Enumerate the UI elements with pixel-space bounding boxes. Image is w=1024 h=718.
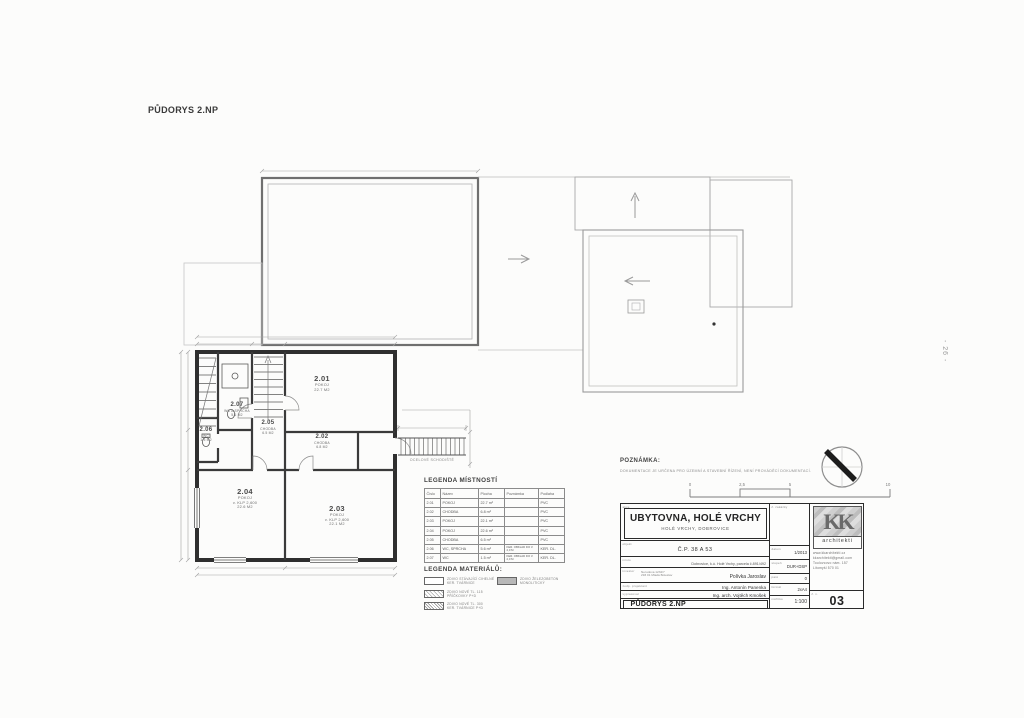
col-podlaha: Podlaha — [539, 489, 565, 499]
scale-label-5: 5 — [789, 482, 791, 487]
room-id: 2.02 — [314, 434, 330, 441]
titleblock-projektant-cell: zodp. projektant Ing. Antonín Panenka — [621, 583, 769, 591]
pare-label: paré — [772, 575, 779, 579]
titleblock-logo-column: KK architekti www.kkarchitekti.cz kkarch… — [809, 504, 863, 608]
room-name: WC A SPRCHA — [224, 409, 250, 413]
format-label: formát — [772, 585, 782, 589]
contact-city: Litomyšl 570 01 — [813, 566, 852, 571]
misto-value: Dobrovice, k.ú. Holé Vrchy, parcela č.89… — [621, 557, 769, 566]
project-subtitle: HOLÉ VRCHY, DOBROVICE — [625, 526, 766, 531]
drawing-title: PŮDORYS 2.NP — [624, 601, 767, 608]
legend-rooms-table: Číslo Název Plocha Poznámka Podlaha 2.01… — [424, 488, 565, 563]
titleblock-investor-cell: investor Nerudova 1234/7 293 01 Mladá Bo… — [621, 568, 769, 583]
akce-box: UBYTOVNA, HOLÉ VRCHY HOLÉ VRCHY, DOBROVI… — [624, 508, 767, 539]
project-title: UBYTOVNA, HOLÉ VRCHY — [625, 513, 766, 524]
investor-name: Polívka Jaroslav — [730, 574, 766, 580]
material-item-concrete: ZDIVO ŽELEZOBETON MONOLITICKÝ — [497, 577, 559, 585]
legend-rooms-title: LEGENDA MÍSTNOSTÍ — [424, 477, 497, 484]
scale-label-10: 10 — [886, 482, 891, 487]
table-header-row: Číslo Název Plocha Poznámka Podlaha — [425, 489, 565, 499]
table-row: 2.07WC 1.5 m²KER. OBKLAD DO V. 2,0 M KER… — [425, 554, 565, 563]
room-name: CHODBA — [314, 441, 330, 445]
zakazka-label: č. zakázky — [772, 505, 788, 509]
titleblock-meta-column: č. zakázky datum 1/2013 stupeň DUR+DSP p… — [769, 504, 809, 608]
room-label-2-01: 2.01 POKOJ 22.7 M2 — [314, 375, 330, 392]
drawing-number: 03 — [810, 594, 864, 608]
room-id: 2.05 — [260, 420, 276, 427]
room-label-2-07: 2.07 WC A SPRCHA 5.6 M2 — [224, 402, 250, 417]
interior-walls — [197, 352, 395, 560]
material-line: KER. TVÁRNICE P+D — [447, 606, 483, 610]
table-row: 2.04POKOJ 22.6 m² PVC — [425, 526, 565, 535]
objekt-value: Č.P. 38 A 53 — [621, 547, 769, 553]
projektant-label: zodp. projektant — [623, 584, 648, 588]
pare-cell: paré 0 — [770, 574, 809, 584]
room-area: 22.6 M2 — [233, 505, 257, 510]
vypracoval-label: vypracoval — [623, 592, 639, 596]
material-item-new-thick: ZDIVO NOVÉ TL. 300 KER. TVÁRNICE P+D — [424, 602, 483, 610]
material-line: KER. TVÁRNICE — [447, 581, 494, 585]
drawing-number-cell: č. v. 03 — [810, 590, 864, 608]
titleblock-obsah-cell: PŮDORYS 2.NP — [621, 599, 769, 608]
room-area: 1.5 M2 — [200, 438, 213, 442]
note-text: DOKUMENTACE JE URČENA PRO ÚZEMNÍ A STAVE… — [620, 469, 890, 473]
scale-label-0: 0 — [689, 482, 691, 487]
objekt-label: objekt — [623, 542, 632, 546]
roof-slope-arrows — [508, 193, 650, 285]
col-poznamka: Poznámka — [505, 489, 539, 499]
drawing-number-label: č. v. — [812, 592, 818, 596]
legend-materials-title: LEGENDA MATERIÁLŮ: — [424, 566, 502, 573]
titleblock-vypracoval-cell: vypracoval Ing. arch. Vojtěch Kmošek — [621, 591, 769, 599]
exterior-walls — [197, 352, 395, 560]
logo-contact-lines: www.kkarchitekti.cz kkarchitekti@gmail.c… — [813, 551, 852, 571]
stupen-label: stupeň — [772, 561, 782, 565]
material-line: MONOLITICKÝ — [520, 581, 559, 585]
material-item-existing: ZDIVO STÁVAJÍCÍ CIHELNÉ KER. TVÁRNICE — [424, 577, 494, 585]
table-row: 2.02CHODBA 6.8 m² PVC — [425, 508, 565, 517]
roof-outlines — [184, 177, 792, 392]
datum-cell: datum 1/2013 — [770, 546, 809, 560]
title-block: akce UBYTOVNA, HOLÉ VRCHY HOLÉ VRCHY, DO… — [620, 503, 864, 609]
scale-label-25: 2,5 — [739, 482, 745, 487]
page-title: PŮDORYS 2.NP — [148, 105, 218, 115]
room-area: 22.1 M2 — [325, 522, 349, 527]
material-line: PŘÍČKOVKY P+D — [447, 594, 483, 598]
col-nazev: Název — [441, 489, 479, 499]
col-plocha: Plocha — [479, 489, 505, 499]
material-swatch-plain — [424, 577, 444, 585]
material-swatch-solid — [497, 577, 517, 585]
investor-label: investor — [623, 569, 635, 573]
kk-architekti-logo: KK architekti — [813, 506, 862, 549]
steel-stair-label: OCELOVÉ SCHODIŠTĚ — [410, 458, 454, 462]
steel-staircase — [398, 438, 466, 455]
room-area: 6.8 M2 — [314, 445, 330, 449]
room-label-2-04: 2.04 POKOJ v. KLP 2,600 22.6 M2 — [233, 488, 257, 510]
table-row: 2.01POKOJ 22.7 m² PVC — [425, 499, 565, 508]
material-item-new-thin: ZDIVO NOVÉ TL. 115 PŘÍČKOVKY P+D — [424, 590, 483, 598]
meritko-label: měřítko — [772, 597, 783, 601]
table-row: 2.03POKOJ 22.1 m² PVC — [425, 517, 565, 526]
stupen-cell: stupeň DUR+DSP — [770, 560, 809, 574]
room-label-2-05: 2.05 CHODBA 6.5 M2 — [260, 420, 276, 435]
side-page-number: - 26 - — [941, 340, 948, 362]
room-area: 5.6 M2 — [224, 413, 250, 417]
room-label-2-03: 2.03 POKOJ v. KLP 2,600 22.1 M2 — [325, 505, 349, 527]
obsah-box: PŮDORYS 2.NP — [623, 600, 768, 609]
misto-label: místo — [623, 558, 631, 562]
room-name: CHODBA — [260, 427, 276, 431]
logo-architekti-text: architekti — [814, 536, 861, 546]
contact-street: Toulovcovo nám. 157 — [813, 561, 852, 566]
material-swatch-crosshatch — [424, 602, 444, 610]
vypracoval-name: Ing. arch. Vojtěch Kmošek — [713, 593, 766, 598]
investor-address-2: 293 01 Mladá Boleslav — [641, 574, 672, 578]
north-arrow-icon — [822, 447, 862, 487]
datum-label: datum — [772, 547, 781, 551]
scale-bar — [690, 489, 890, 497]
titleblock-akce-cell: akce UBYTOVNA, HOLÉ VRCHY HOLÉ VRCHY, DO… — [621, 504, 769, 541]
room-id: 2.06 — [200, 427, 213, 434]
room-label-2-02: 2.02 CHODBA 6.8 M2 — [314, 434, 330, 449]
meritko-cell: měřítko 1:100 — [770, 596, 809, 608]
titleblock-misto-cell: místo Dobrovice, k.ú. Holé Vrchy, parcel… — [621, 557, 769, 568]
titleblock-objekt-cell: objekt Č.P. 38 A 53 — [621, 541, 769, 557]
logo-kk-letters: KK — [814, 507, 861, 536]
table-row: 2.05CHODBA 6.5 m² PVC — [425, 535, 565, 544]
room-area: 22.7 M2 — [314, 388, 330, 393]
stair-2-05 — [254, 356, 283, 420]
material-swatch-hatch — [424, 590, 444, 598]
projektant-name: Ing. Antonín Panenka — [722, 585, 766, 590]
interior-stair — [199, 358, 216, 426]
zakazka-cell: č. zakázky — [770, 504, 809, 546]
room-area: 6.5 M2 — [260, 431, 276, 435]
room-label-2-06: 2.06 WC 1.5 M2 — [200, 427, 213, 442]
note-title: POZNÁMKA: — [620, 458, 660, 464]
format-cell: formát 2xA4 — [770, 584, 809, 596]
table-row: 2.06WC, SPRCHA 5.6 m²KER. OBKLAD DO V. 2… — [425, 544, 565, 553]
col-cislo: Číslo — [425, 489, 441, 499]
